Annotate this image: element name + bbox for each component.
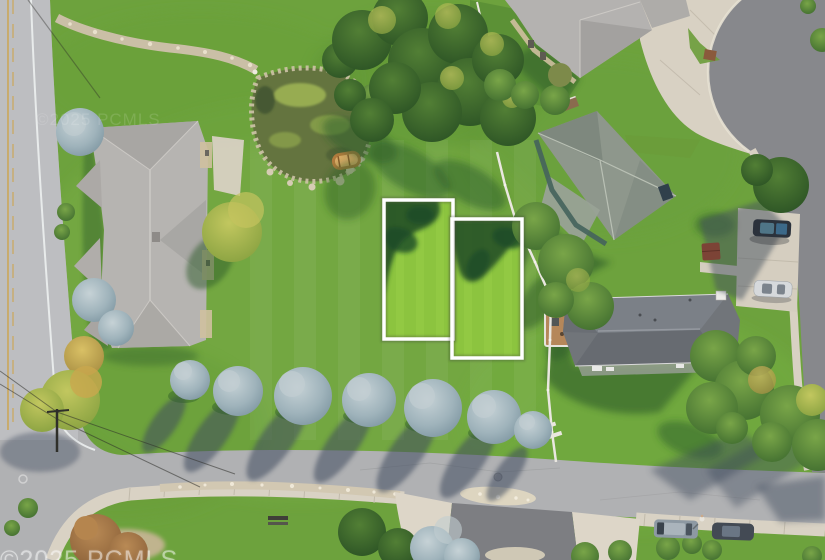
fire-pit — [703, 49, 717, 61]
silver-car — [751, 280, 792, 304]
brown-dumpster — [701, 242, 720, 260]
dark-sedan — [712, 522, 755, 540]
dark-pickup — [749, 219, 791, 246]
aerial-photo-art — [0, 0, 825, 560]
gray-suv — [654, 519, 699, 539]
lot-interior-left — [379, 200, 453, 339]
aerial-photo: ©2025 PCMLS ©2025 PCMLS — [0, 0, 825, 560]
lot-interior-right — [452, 219, 526, 358]
